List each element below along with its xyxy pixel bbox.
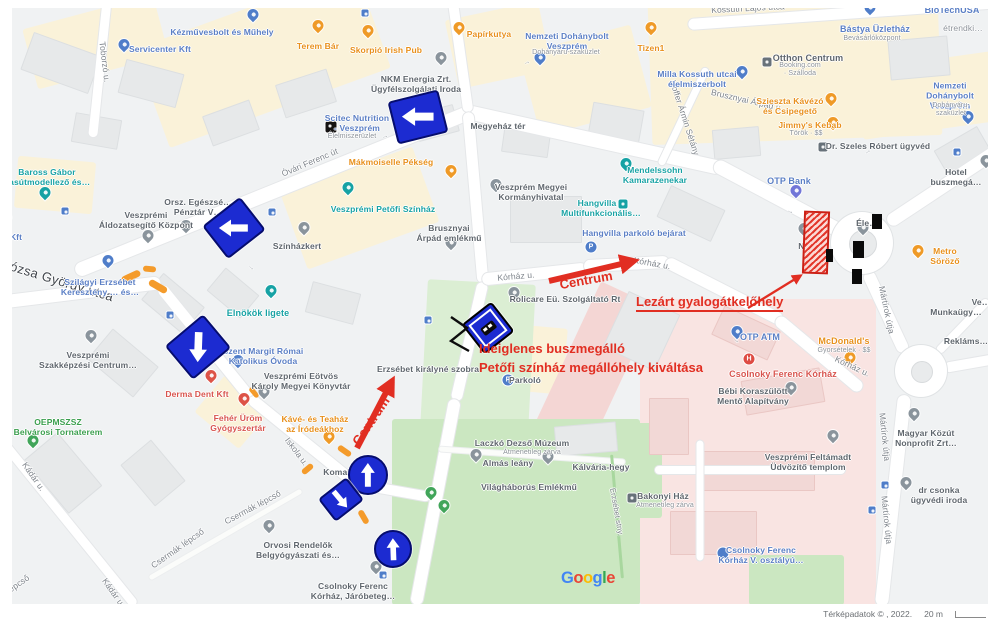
poi-label[interactable]: Munkaügy…	[930, 308, 981, 318]
poi-label[interactable]: Mendelssohn Kamarazenekar	[623, 166, 687, 186]
map-pin-sqg[interactable]	[763, 58, 772, 67]
poi-label[interactable]: Multifunkcionális…	[561, 209, 641, 219]
poi-label[interactable]: Kézművesbolt és Műhely	[170, 28, 273, 38]
building	[120, 439, 185, 506]
map-pin-busq[interactable]	[269, 209, 276, 216]
poi-label[interactable]: Veszprémi Szakképzési Centrum…	[39, 351, 137, 371]
sign-arrow-icon	[360, 463, 376, 487]
poi-label[interactable]: Szilágyi Erzsébet Keresztény … és…	[61, 278, 139, 298]
poi-label[interactable]: Veszprémi Eötvös Károly Megyei Könyvtár	[251, 372, 350, 392]
map-attribution: Térképadatok © , 2022.	[823, 609, 912, 619]
poi-label[interactable]: Terem Bár	[297, 42, 339, 52]
street-label[interactable]: Kórház u.	[497, 271, 535, 284]
map-pin-gray[interactable]	[433, 50, 449, 66]
map-pin-busq[interactable]	[167, 312, 174, 319]
construction-marker	[357, 509, 370, 525]
poi-label[interactable]: NKM Energia Zrt. Ügyfélszolgálati Iroda	[371, 75, 461, 95]
poi-label[interactable]: Mákmoiselle Pékség	[349, 158, 433, 168]
sign-arrow-icon	[402, 106, 434, 127]
road-closure-bar	[852, 269, 862, 284]
street-label[interactable]: …lépcső	[12, 573, 32, 600]
annotation-temp-bus-stop-line1: Ideiglenes buszmegálló	[479, 341, 625, 356]
map-pin-busq[interactable]	[425, 317, 432, 324]
poi-label[interactable]: Milla Kossuth utcai élelmiszerbolt	[657, 70, 736, 90]
poi-label[interactable]: Elnökök ligete	[227, 308, 289, 318]
road-closure-bar	[826, 249, 833, 262]
poi-label[interactable]: McDonald's	[818, 336, 869, 346]
map-pin-orange[interactable]	[443, 163, 459, 179]
poi-label[interactable]: Rolicare Eü. Szolgáltató Rt	[510, 295, 621, 305]
map-pin-red[interactable]	[203, 368, 219, 384]
annotation-closed-crossing: Lezárt gyalogátkelőhely	[636, 294, 783, 312]
poi-label[interactable]: Színházkert	[273, 242, 321, 252]
poi-label[interactable]: Rekláms…	[944, 337, 988, 347]
annotation-centrum-lower: Centrum	[349, 394, 392, 448]
poi-label[interactable]: Skorpió Irish Pub	[350, 46, 422, 56]
poi-label[interactable]: Dr. Szeles Róbert ügyvéd	[826, 142, 930, 152]
sign-arrow-icon	[329, 486, 353, 511]
map-pin-busq[interactable]	[380, 572, 387, 579]
poi-label[interactable]: Hangvilla parkoló bejárat	[582, 229, 686, 239]
poi-label[interactable]: Gyorsételek · $$	[818, 347, 871, 355]
poi-label[interactable]: Bébi Koraszülött Mentő Alapítvány	[717, 387, 789, 407]
map-tiles[interactable]: Centrum Centrum Ideiglenes buszmegálló P…	[12, 8, 988, 604]
one-way-arrow-icon: →	[246, 263, 257, 274]
poi-label[interactable]: Világháborús Emlékmű	[481, 483, 577, 493]
poi-label[interactable]: Csolnoky Ferenc Kórház	[729, 369, 837, 379]
poi-label[interactable]: OTP Bank	[767, 176, 811, 186]
google-logo-letter: e	[606, 569, 615, 587]
poi-label[interactable]: Laczkó Dezső Múzeum	[475, 439, 569, 449]
poi-label[interactable]: Veszprém Megyei Kormányhivatal	[495, 183, 567, 203]
poi-label[interactable]: Fehér Üröm Gyógyszertár	[210, 414, 266, 434]
poi-label[interactable]: OTP ATM	[740, 332, 780, 342]
map-pin-busq[interactable]	[62, 208, 69, 215]
poi-label[interactable]: OEPMSZSZ Belvárosi Tornaterem	[14, 418, 103, 438]
poi-label[interactable]: Bakonyi Ház	[637, 492, 689, 502]
one-way-arrow-icon: →	[785, 207, 795, 217]
closed-crossing-hatch	[802, 211, 830, 275]
poi-label[interactable]: BioTechUSA	[925, 8, 980, 15]
poi-label[interactable]: Szent Margit Római Katolikus Óvoda	[223, 347, 304, 367]
poi-label[interactable]: Booking.com · Szálloda	[779, 62, 821, 78]
poi-label[interactable]: Átmenetileg zárva	[503, 449, 561, 457]
building	[305, 281, 362, 325]
roundabout-island	[911, 361, 933, 383]
poi-label[interactable]: Szieszta Kávézó és Csipegető	[756, 97, 823, 117]
poi-label[interactable]: Bevásárlóközpont	[843, 35, 900, 43]
map-pin-gray[interactable]	[261, 518, 277, 534]
poi-label[interactable]: Brusznyai Árpád emlékmű	[416, 224, 481, 244]
poi-label[interactable]: Orvosi Rendelők Belgyógyászati és…	[256, 541, 340, 561]
map-pin-busq[interactable]	[362, 10, 369, 17]
map-pin-busq[interactable]	[954, 149, 961, 156]
poi-label[interactable]: Veszprémi Petőfi Színház	[331, 205, 435, 215]
poi-label[interactable]: Hotel buszmegá…	[931, 168, 982, 188]
map-pin-pcirc[interactable]: P	[586, 242, 597, 253]
poi-label[interactable]: Almás leány	[483, 459, 534, 469]
building	[649, 398, 689, 455]
map-pin-blue[interactable]	[12, 210, 14, 226]
construction-marker	[336, 444, 352, 458]
road-closure-bar	[853, 241, 864, 258]
poi-label[interactable]: Baross Gábor Vasútmodellező és…	[12, 168, 90, 188]
mandatory-direction-sign	[374, 530, 412, 568]
poi-label[interactable]: Élelmiszerüzlet	[328, 133, 377, 141]
sign-arrow-icon	[385, 538, 401, 561]
poi-label[interactable]: étrendki…	[943, 24, 983, 34]
poi-label[interactable]: Dohányáru-szaküzlet	[927, 102, 976, 118]
poi-label[interactable]: Dohányáru-szaküzlet	[532, 49, 600, 57]
poi-label[interactable]: Papírkutya	[467, 30, 511, 40]
google-logo-letter: G	[561, 569, 573, 587]
poi-label[interactable]: Török · $$	[790, 130, 823, 138]
poi-label[interactable]: dr csonka ügyvédi iroda	[909, 486, 970, 506]
poi-label[interactable]: Derma Dent Kft	[165, 390, 228, 400]
google-logo-letter: o	[573, 569, 583, 587]
sign-arrow-icon	[187, 331, 208, 362]
road	[148, 488, 302, 580]
poi-label[interactable]: Átmenetileg zárva	[636, 502, 694, 510]
poi-label[interactable]: Csolnoky Ferenc Kórház, Járóbeteg…	[311, 582, 395, 602]
construction-marker	[142, 265, 155, 272]
google-logo[interactable]: Google	[561, 569, 615, 588]
poi-label[interactable]: Metro Söröző	[918, 247, 973, 267]
poi-label[interactable]: Scitec Nutrition - Veszprém	[325, 114, 389, 134]
poi-label[interactable]: Kálvária-hegy	[572, 463, 629, 473]
poi-label[interactable]: Megyeház tér	[470, 122, 525, 132]
building	[711, 126, 760, 160]
poi-label[interactable]: Parkoló	[509, 376, 541, 386]
scale-bar	[955, 611, 986, 618]
map-pin-teal[interactable]	[263, 283, 279, 299]
poi-label[interactable]: Magyar Közút Nonprofit Zrt…	[895, 429, 957, 449]
poi-label[interactable]: Bástya Üzletház	[840, 24, 910, 34]
street-label[interactable]: Mártírok útja	[877, 412, 892, 461]
poi-label[interactable]: Kávé- és Teaház az Íródeákhoz	[281, 415, 348, 435]
poi-label[interactable]: Tizen1	[638, 44, 665, 54]
poi-label[interactable]: Kft	[12, 233, 22, 243]
poi-label[interactable]: Veszprémi Feltámadt Üdvözítő templom	[765, 453, 851, 473]
sign-arrow-icon	[219, 218, 248, 237]
map-pin-busq[interactable]	[869, 507, 876, 514]
poi-label[interactable]: Csolnoky Ferenc Kórház V. osztályú…	[718, 546, 803, 566]
road	[943, 353, 988, 373]
map-pin-busq[interactable]	[882, 482, 889, 489]
map-pin-redH[interactable]: H	[744, 354, 755, 365]
annotation-temp-bus-stop-line2: Petőfi színház megállóhely kiváltása	[479, 360, 703, 375]
poi-label[interactable]: Erzsébet királyné szobra	[377, 365, 479, 375]
road-closure-bar	[872, 214, 882, 229]
google-logo-letter: g	[593, 569, 603, 587]
google-logo-letter: o	[583, 569, 593, 587]
scale-label: 20 m	[924, 609, 943, 619]
map-screenshot: Centrum Centrum Ideiglenes buszmegálló P…	[0, 0, 1000, 631]
map-pin-gray[interactable]	[83, 328, 99, 344]
road	[697, 440, 704, 560]
map-viewport[interactable]: Centrum Centrum Ideiglenes buszmegálló P…	[12, 8, 988, 604]
road	[462, 111, 488, 282]
poi-label[interactable]: Veszprémi Áldozatsegítő Központ	[99, 211, 193, 231]
poi-label[interactable]: Servicenter Kft	[129, 45, 191, 55]
